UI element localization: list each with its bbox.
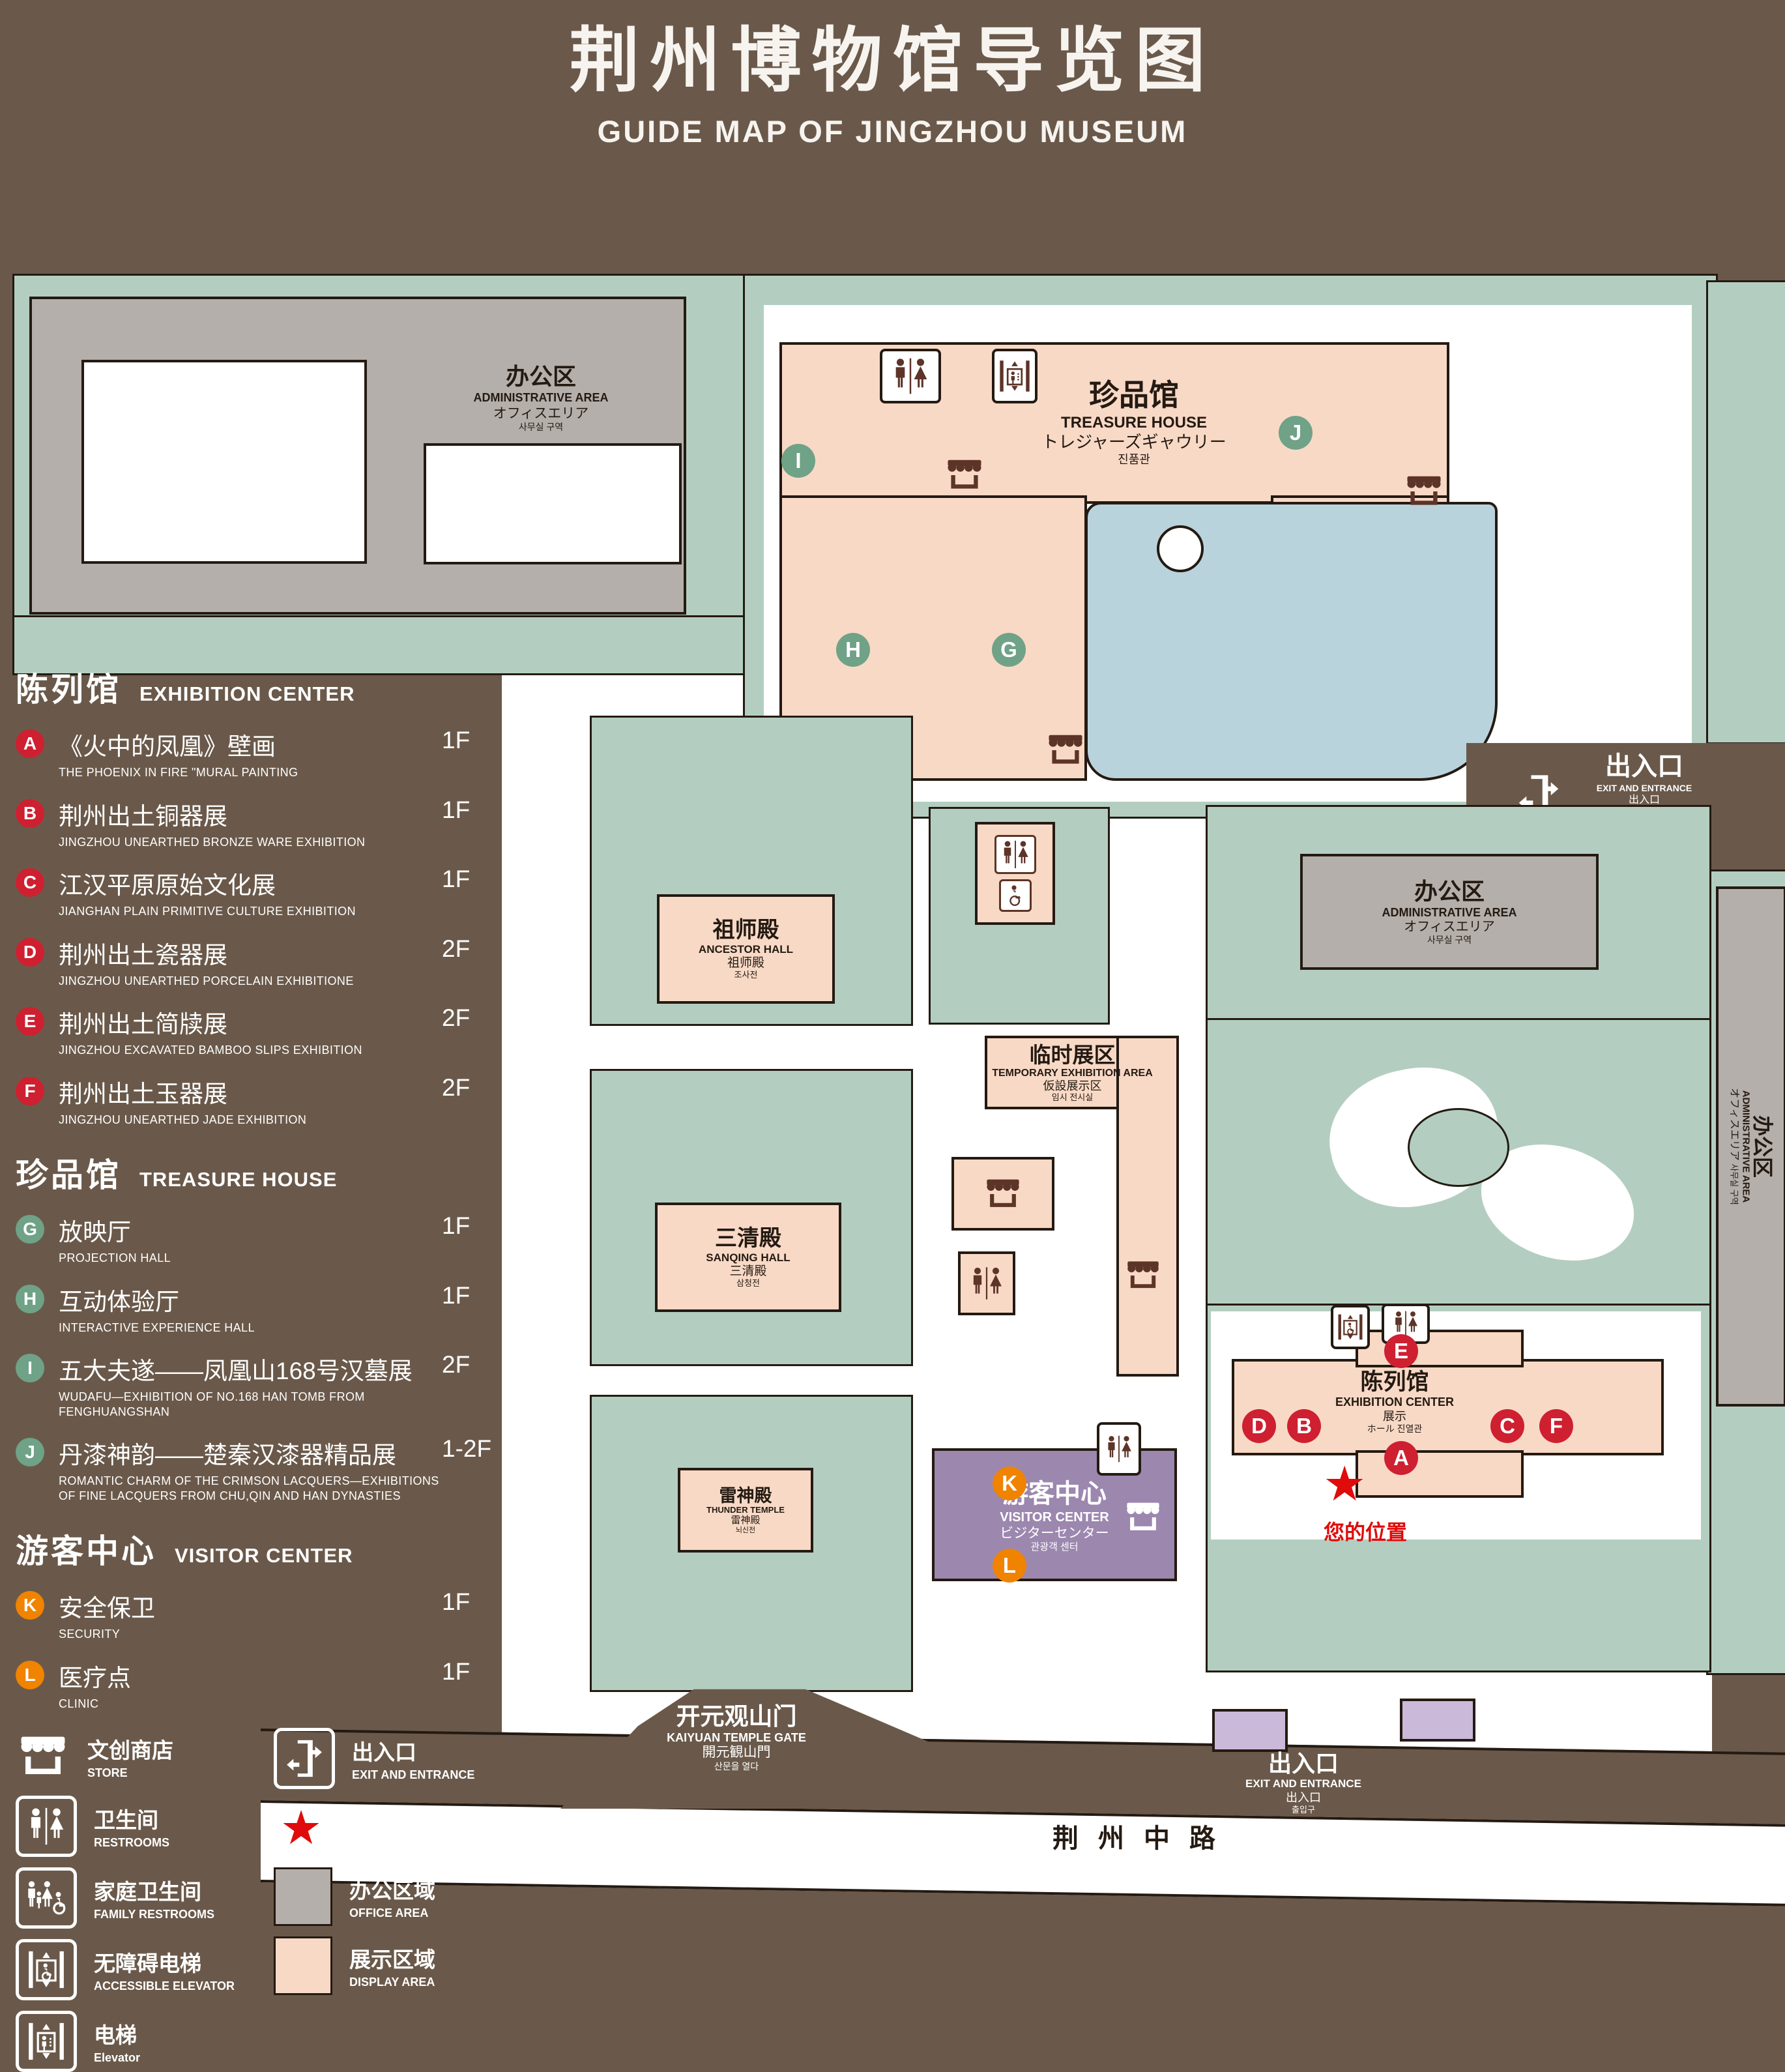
restrooms-small-building [958, 1251, 1015, 1315]
marker-a: A [1384, 1441, 1418, 1475]
family-restrooms-icon [16, 1867, 77, 1929]
marker-d: D [1242, 1409, 1276, 1443]
legend-item-l: L 医疗点 CLINIC 1F [16, 1658, 502, 1712]
floor: 1-2F [442, 1435, 502, 1463]
exit-icon [274, 1728, 335, 1789]
floor: 2F [442, 1074, 502, 1102]
restrooms-icon [880, 349, 941, 403]
your-location-star: ★ [1323, 1460, 1366, 1508]
building-sanqing-hall: 三清殿 SANQING HALL 三清殿 삼청전 [655, 1203, 841, 1312]
badge-k: K [16, 1591, 44, 1620]
badge-e: E [16, 1007, 44, 1036]
label-exit-south: 出入口 EXIT AND ENTRANCE 出入口 출입구 [1228, 1749, 1378, 1815]
badge-j: J [16, 1438, 44, 1466]
display-area-swatch [274, 1936, 332, 1995]
store-icon [942, 456, 987, 494]
floor: 2F [442, 1004, 502, 1032]
badge-g: G [16, 1215, 44, 1244]
legend-item-d: D 荆州出土瓷器展 JINGZHOU UNEARTHED PORCELAIN E… [16, 935, 502, 989]
restrooms-icon [1097, 1422, 1141, 1476]
your-location-label: 您的位置 [1281, 1516, 1450, 1546]
label-treasure: 珍品馆 TREASURE HOUSE トレジャーズギャウリー 진품관 [1004, 377, 1264, 467]
marker-l: L [993, 1549, 1026, 1583]
legend-section-exhibition-center: 陈列馆 EXHIBITION CENTER [16, 664, 502, 710]
store-icon [16, 1729, 70, 1784]
legend-symbol-office-area: 办公区域 OFFICE AREA [274, 1867, 502, 1926]
courtyard-northwest-b [424, 443, 682, 564]
floor: 1F [442, 1588, 502, 1616]
floor: 2F [442, 1351, 502, 1379]
treasure-rotunda [1157, 525, 1204, 572]
accessible-elevator-icon [1331, 1305, 1370, 1349]
legend-symbol-elevator: 电梯 Elevator [16, 2011, 244, 2072]
restrooms-icon [968, 1265, 1005, 1302]
legend-item-h: H 互动体验厅 INTERACTIVE EXPERIENCE HALL 1F [16, 1282, 502, 1335]
restrooms-building [975, 822, 1055, 925]
location-star-icon: ★ [274, 1801, 328, 1856]
store-icon [1122, 1499, 1164, 1536]
badge-c: C [16, 868, 44, 897]
badge-d: D [16, 938, 44, 967]
label-gate: 开元观山门 KAIYUAN TEMPLE GATE 開元観山門 산문을 열다 [622, 1702, 850, 1772]
badge-f: F [16, 1077, 44, 1105]
legend-symbol-your-location: ★ 您的位置 YOUR LOCATION [274, 1800, 502, 1857]
elevator-icon [16, 2011, 77, 2072]
grounds-east-strip-upper [1706, 280, 1785, 744]
legend-item-f: F 荆州出土玉器展 JINGZHOU UNEARTHED JADE EXHIBI… [16, 1074, 502, 1128]
marker-c: C [1490, 1409, 1524, 1443]
badge-h: H [16, 1285, 44, 1313]
legend-item-j: J 丹漆神韵——楚秦汉漆器精品展 ROMANTIC CHARM OF THE C… [16, 1435, 502, 1503]
marker-h: H [836, 633, 870, 667]
building-thunder-temple: 雷神殿 THUNDER TEMPLE 雷神殿 뇌신전 [678, 1468, 813, 1553]
road-label: 荆州中路 [1007, 1817, 1281, 1855]
exit-south-pad [1212, 1709, 1288, 1752]
legend-item-a: A 《火中的凤凰》壁画 THE PHOENIX IN FIRE "MURAL P… [16, 727, 502, 780]
accessible-elevator-icon [16, 1939, 77, 2000]
pond [1085, 502, 1498, 781]
label-admin-far-east: 办公区 ADMINISTRATIVE AREA オフィスエリア 사무실 구역 [1728, 912, 1773, 1381]
floor: 1F [442, 1658, 502, 1685]
legend-section-visitor-center: 游客中心 VISITOR CENTER [16, 1525, 502, 1572]
legend-symbol-accessible-elevator: 无障碍电梯 ACCESSIBLE ELEVATOR [16, 1939, 244, 2000]
building-admin-far-east: 办公区 ADMINISTRATIVE AREA オフィスエリア 사무실 구역 [1716, 886, 1785, 1407]
marker-e: E [1384, 1334, 1418, 1368]
store-building [951, 1157, 1054, 1231]
store-icon [1122, 1258, 1164, 1293]
restrooms-icon [16, 1796, 77, 1857]
floor: 2F [442, 935, 502, 963]
marker-i: I [781, 444, 815, 478]
page-title: 荆州博物馆导览图 GUIDE MAP OF JINGZHOU MUSEUM [0, 4, 1785, 149]
label-thunder: 雷神殿 THUNDER TEMPLE 雷神殿 뇌신전 [680, 1486, 811, 1534]
store-icon [1401, 473, 1447, 510]
title-en: GUIDE MAP OF JINGZHOU MUSEUM [0, 113, 1785, 149]
legend-panel: 陈列馆 EXHIBITION CENTER A 《火中的凤凰》壁画 THE PH… [16, 664, 502, 2072]
legend-symbol-family-restrooms: 家庭卫生间 FAMILY RESTROOMS [16, 1867, 244, 1929]
label-temporary: 临时展区 TEMPORARY EXHIBITION AREA 仮設展示区 임시 … [957, 1043, 1188, 1103]
wheelchair-icon [999, 879, 1032, 912]
legend-symbol-exit: 出入口 EXIT AND ENTRANCE [274, 1728, 502, 1789]
marker-b: B [1287, 1409, 1321, 1443]
badge-a: A [16, 729, 44, 758]
marker-f: F [1539, 1409, 1573, 1443]
store-icon [1043, 731, 1088, 769]
label-ancestor: 祖师殿 ANCESTOR HALL 祖师殿 조사전 [660, 918, 832, 980]
building-exhibition-south [1356, 1450, 1524, 1498]
guide-map-poster: { "title": {"zh": "荆州博物馆导览图", "en": "GUI… [0, 0, 1785, 1908]
garden-island [1408, 1108, 1509, 1187]
building-admin-east: 办公区 ADMINISTRATIVE AREA オフィスエリア 사무실 구역 [1300, 854, 1599, 970]
store-icon [981, 1176, 1024, 1212]
office-area-swatch [274, 1867, 332, 1926]
legend-item-g: G 放映厅 PROJECTION HALL 1F [16, 1212, 502, 1266]
floor: 1F [442, 796, 502, 824]
floor: 1F [442, 727, 502, 754]
legend-item-c: C 江汉平原原始文化展 JIANGHAN PLAIN PRIMITIVE CUL… [16, 866, 502, 919]
legend-item-e: E 荆州出土简牍展 JINGZHOU EXCAVATED BAMBOO SLIP… [16, 1004, 502, 1058]
floor: 1F [442, 1282, 502, 1309]
floor: 1F [442, 1212, 502, 1240]
building-ancestor-hall: 祖师殿 ANCESTOR HALL 祖师殿 조사전 [657, 894, 835, 1004]
label-admin-northwest: 办公区 ADMINISTRATIVE AREA オフィスエリア 사무실 구역 [417, 362, 665, 433]
legend-symbol-display-area: 展示区域 DISPLAY AREA [274, 1936, 502, 1995]
courtyard-northwest-a [81, 360, 367, 564]
marker-k: K [993, 1466, 1026, 1500]
badge-l: L [16, 1661, 44, 1689]
marker-g: G [992, 633, 1026, 667]
legend-symbols: 文创商店 STORE 卫生间 RESTROOMS 家庭卫生间 FAMILY RE… [16, 1728, 502, 2072]
label-admin-east: 办公区 ADMINISTRATIVE AREA オフィスエリア 사무실 구역 [1303, 878, 1596, 946]
legend-symbol-store: 文创商店 STORE [16, 1728, 244, 1785]
legend-item-k: K 安全保卫 SECURITY 1F [16, 1588, 502, 1642]
legend-section-treasure-house: 珍品馆 TREASURE HOUSE [16, 1149, 502, 1196]
marker-j: J [1279, 416, 1313, 450]
badge-i: I [16, 1354, 44, 1382]
badge-b: B [16, 799, 44, 828]
legend-symbol-restrooms: 卫生间 RESTROOMS [16, 1796, 244, 1857]
elevator-icon [992, 349, 1038, 403]
title-zh: 荆州博物馆导览图 [0, 4, 1785, 106]
label-sanqing: 三清殿 SANQING HALL 三清殿 삼청전 [658, 1226, 839, 1288]
building-exhibition-north [1356, 1330, 1524, 1367]
floor: 1F [442, 866, 502, 893]
exit-south-pad [1400, 1699, 1475, 1742]
legend-item-i: I 五大夫遂——凤凰山168号汉墓展 WUDAFU—EXHIBITION OF … [16, 1351, 502, 1419]
restrooms-icon [994, 835, 1036, 874]
legend-item-b: B 荆州出土铜器展 JINGZHOU UNEARTHED BRONZE WARE… [16, 796, 502, 850]
